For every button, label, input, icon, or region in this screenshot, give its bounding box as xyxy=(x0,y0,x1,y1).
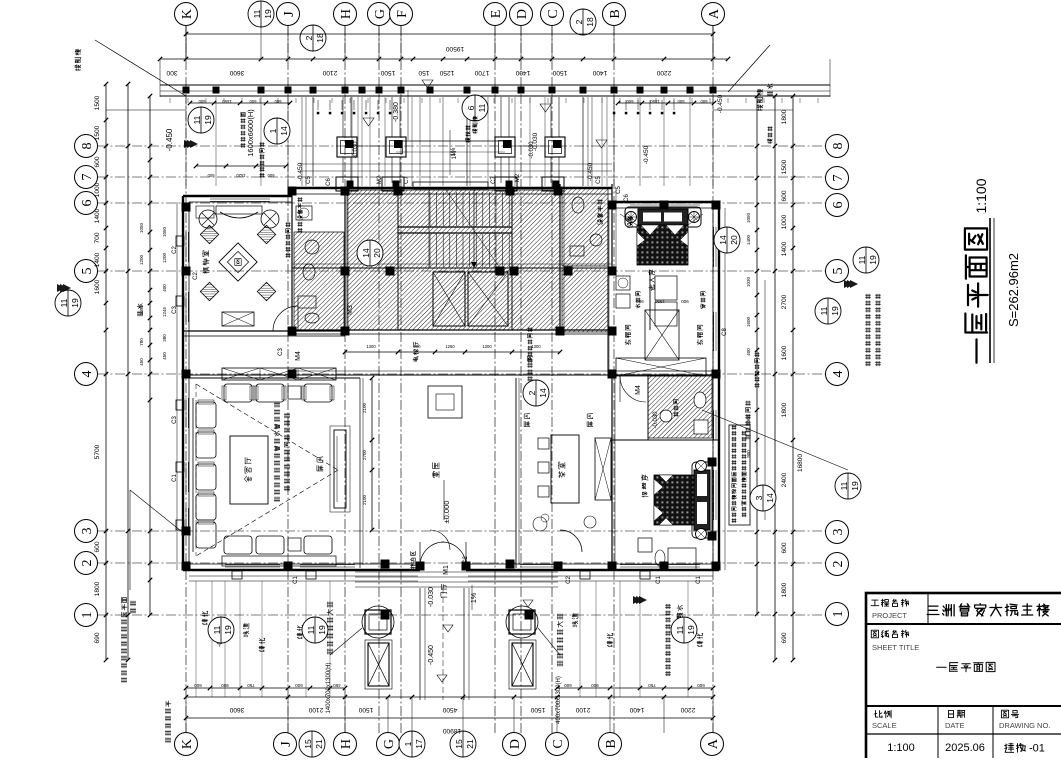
svg-text:1800: 1800 xyxy=(781,109,788,124)
svg-text:11: 11 xyxy=(252,9,262,18)
svg-text:1200: 1200 xyxy=(162,252,167,263)
svg-text:C8: C8 xyxy=(722,328,728,336)
svg-text:600: 600 xyxy=(697,683,705,688)
svg-text:3: 3 xyxy=(754,495,764,500)
svg-text:C: C xyxy=(546,9,561,18)
svg-text:M4: M4 xyxy=(295,351,302,361)
svg-text:19: 19 xyxy=(263,9,273,19)
svg-text:16800: 16800 xyxy=(797,454,804,472)
svg-text:600: 600 xyxy=(781,542,788,553)
svg-text:900: 900 xyxy=(746,450,751,458)
svg-text:1400: 1400 xyxy=(746,234,751,245)
svg-text:C7: C7 xyxy=(491,176,497,184)
svg-text:600: 600 xyxy=(564,683,572,688)
svg-text:B: B xyxy=(604,739,619,748)
svg-text:14: 14 xyxy=(718,235,728,245)
svg-text:J: J xyxy=(279,741,294,747)
svg-text:4500: 4500 xyxy=(442,706,457,713)
svg-text:11: 11 xyxy=(59,298,69,307)
svg-text:M3: M3 xyxy=(347,305,354,315)
svg-text:19: 19 xyxy=(868,255,878,265)
svg-text:7: 7 xyxy=(831,175,846,182)
svg-text:1400: 1400 xyxy=(515,69,530,76)
svg-text:3: 3 xyxy=(80,528,95,535)
svg-text:C5: C5 xyxy=(306,176,312,184)
svg-text:19500: 19500 xyxy=(446,45,465,52)
svg-text:1700: 1700 xyxy=(474,69,489,76)
svg-text:1400: 1400 xyxy=(94,252,101,267)
svg-text:20: 20 xyxy=(729,235,739,245)
svg-text:600: 600 xyxy=(677,99,685,104)
svg-text:-0.450: -0.450 xyxy=(717,94,724,113)
svg-text:1400: 1400 xyxy=(781,241,788,256)
svg-text:C5: C5 xyxy=(596,176,602,184)
svg-text:19: 19 xyxy=(686,625,696,635)
svg-text:C: C xyxy=(551,739,566,748)
svg-text:1500: 1500 xyxy=(380,69,395,76)
svg-text:G: G xyxy=(382,739,397,749)
svg-text:7: 7 xyxy=(80,174,95,181)
svg-text:11: 11 xyxy=(839,481,849,490)
svg-text:400: 400 xyxy=(162,284,167,292)
svg-text:1400x700x1300(H): 1400x700x1300(H) xyxy=(326,662,332,713)
svg-text:C1: C1 xyxy=(172,474,178,482)
svg-text:A: A xyxy=(706,738,721,749)
svg-text:600: 600 xyxy=(194,683,202,688)
svg-text:DATE: DATE xyxy=(945,721,964,730)
svg-text:1500: 1500 xyxy=(358,706,373,713)
svg-text:1600: 1600 xyxy=(746,316,751,327)
svg-text:H: H xyxy=(339,739,354,749)
svg-text:1500: 1500 xyxy=(781,159,788,174)
svg-text:400: 400 xyxy=(746,348,751,356)
svg-text:15: 15 xyxy=(303,739,313,749)
svg-text:2700: 2700 xyxy=(781,294,788,309)
svg-text:2025.06: 2025.06 xyxy=(945,742,985,754)
svg-text:1600: 1600 xyxy=(781,345,788,360)
svg-text:19: 19 xyxy=(203,115,213,125)
svg-text:11: 11 xyxy=(477,103,487,112)
svg-text:900: 900 xyxy=(414,344,422,349)
svg-text:D: D xyxy=(508,739,523,749)
svg-text:J: J xyxy=(282,11,297,17)
svg-text:1: 1 xyxy=(403,741,413,746)
svg-text:1600x6600(H): 1600x6600(H) xyxy=(246,109,255,157)
svg-text:2: 2 xyxy=(304,35,314,40)
svg-text:2100: 2100 xyxy=(362,402,367,413)
svg-text:11: 11 xyxy=(212,625,222,634)
svg-text:600: 600 xyxy=(94,541,101,552)
svg-text:19: 19 xyxy=(850,481,860,491)
svg-text:5700: 5700 xyxy=(94,444,101,459)
svg-text:1500: 1500 xyxy=(94,95,101,110)
svg-text:3: 3 xyxy=(831,529,846,536)
svg-text:750: 750 xyxy=(247,683,255,688)
svg-text:400x700x1300(H): 400x700x1300(H) xyxy=(556,676,562,724)
svg-text:E: E xyxy=(489,10,504,19)
svg-text:6: 6 xyxy=(466,105,476,110)
svg-text:19: 19 xyxy=(70,298,80,308)
svg-text:C6: C6 xyxy=(326,178,332,186)
svg-text:1950: 1950 xyxy=(654,299,665,304)
svg-text:1550: 1550 xyxy=(650,99,660,104)
svg-text:1800: 1800 xyxy=(94,581,101,596)
svg-text:1250: 1250 xyxy=(439,69,454,76)
svg-text:S=262.96m2: S=262.96m2 xyxy=(1006,253,1021,327)
svg-text:6: 6 xyxy=(831,202,846,209)
svg-text:1300: 1300 xyxy=(531,344,541,349)
svg-text:1%: 1% xyxy=(451,147,457,156)
svg-text:1000: 1000 xyxy=(781,214,788,229)
svg-text:1800: 1800 xyxy=(781,582,788,597)
svg-text:300: 300 xyxy=(166,69,177,76)
svg-text:19: 19 xyxy=(223,625,233,635)
svg-text:K: K xyxy=(180,9,195,19)
svg-text:2400: 2400 xyxy=(781,472,788,487)
svg-text:A: A xyxy=(707,8,722,19)
svg-text:11: 11 xyxy=(675,625,685,634)
svg-text:8: 8 xyxy=(80,143,95,150)
svg-text:1: 1 xyxy=(831,611,846,618)
svg-text:-0.450: -0.450 xyxy=(297,162,304,181)
svg-text:14: 14 xyxy=(279,126,289,136)
svg-text:1: 1 xyxy=(268,128,278,133)
svg-text:21: 21 xyxy=(465,739,475,749)
svg-text:1500: 1500 xyxy=(94,125,101,140)
svg-text:1050: 1050 xyxy=(139,222,144,233)
svg-text:6: 6 xyxy=(80,200,95,207)
svg-text:M1: M1 xyxy=(443,565,450,575)
svg-text:600: 600 xyxy=(626,99,634,104)
svg-text:1500: 1500 xyxy=(552,69,567,76)
svg-text:SHEET TITLE: SHEET TITLE xyxy=(872,643,919,652)
svg-text:600: 600 xyxy=(274,99,282,104)
svg-text:600: 600 xyxy=(198,99,206,104)
svg-text:750: 750 xyxy=(648,683,656,688)
svg-text:F: F xyxy=(395,10,410,18)
svg-text:4: 4 xyxy=(831,371,846,378)
svg-text:150: 150 xyxy=(418,69,429,76)
svg-text:2200: 2200 xyxy=(656,69,671,76)
svg-text:2: 2 xyxy=(80,560,95,567)
svg-text:G: G xyxy=(373,9,388,19)
svg-text:C3: C3 xyxy=(278,348,284,356)
svg-text:690: 690 xyxy=(781,632,788,643)
svg-text:D: D xyxy=(515,9,530,19)
svg-text:18: 18 xyxy=(585,17,595,27)
svg-text:11: 11 xyxy=(857,255,867,264)
svg-text:2100: 2100 xyxy=(308,706,323,713)
svg-text:600: 600 xyxy=(781,190,788,201)
svg-text:600: 600 xyxy=(295,683,303,688)
svg-text:600: 600 xyxy=(207,173,215,178)
svg-text:M2: M2 xyxy=(377,175,383,184)
svg-text:1400: 1400 xyxy=(94,208,101,223)
svg-text:M4: M4 xyxy=(635,385,642,395)
svg-text:20: 20 xyxy=(372,248,382,258)
svg-text:11: 11 xyxy=(819,306,829,315)
svg-text:C6: C6 xyxy=(624,194,630,202)
svg-text:700: 700 xyxy=(94,232,101,243)
svg-text:5: 5 xyxy=(831,268,846,275)
svg-text:H: H xyxy=(339,9,354,19)
svg-text:C1: C1 xyxy=(696,576,702,584)
svg-text:-0.450: -0.450 xyxy=(643,145,650,164)
svg-text:1050: 1050 xyxy=(746,212,751,223)
svg-text:600: 600 xyxy=(249,99,257,104)
svg-text:1400: 1400 xyxy=(629,706,644,713)
svg-text:450: 450 xyxy=(162,352,167,360)
svg-text:2100: 2100 xyxy=(362,494,367,505)
svg-text:600: 600 xyxy=(94,156,101,167)
svg-text:17: 17 xyxy=(414,739,424,749)
svg-text:C7: C7 xyxy=(404,176,410,184)
svg-text:±0.000: ±0.000 xyxy=(442,501,451,524)
svg-text:-01: -01 xyxy=(1029,743,1045,755)
svg-text:15: 15 xyxy=(454,739,464,749)
svg-text:2100: 2100 xyxy=(322,69,337,76)
svg-text:1500: 1500 xyxy=(530,706,545,713)
svg-text:450: 450 xyxy=(333,683,341,688)
svg-text:14: 14 xyxy=(538,388,548,398)
svg-text:19: 19 xyxy=(317,625,327,635)
svg-text:DRAWING NO.: DRAWING NO. xyxy=(999,721,1050,730)
svg-text:-0.030: -0.030 xyxy=(428,587,435,607)
svg-text:11: 11 xyxy=(192,115,202,124)
svg-text:M2: M2 xyxy=(515,173,521,182)
svg-text:1520: 1520 xyxy=(236,173,246,178)
svg-text:C3: C3 xyxy=(172,306,178,314)
svg-text:900: 900 xyxy=(636,299,644,304)
svg-text:-0.450: -0.450 xyxy=(428,645,435,665)
svg-text:900: 900 xyxy=(221,683,229,688)
svg-text:1200: 1200 xyxy=(139,254,144,265)
svg-text:-0.030: -0.030 xyxy=(532,132,539,151)
svg-text:SCALE: SCALE xyxy=(872,721,897,730)
svg-text:1550: 1550 xyxy=(222,99,232,104)
svg-text:1000: 1000 xyxy=(94,182,101,197)
svg-text:18: 18 xyxy=(315,33,325,43)
svg-text:-0.450: -0.450 xyxy=(165,128,174,151)
svg-text:1300: 1300 xyxy=(366,344,376,349)
svg-text:21: 21 xyxy=(314,739,324,749)
svg-text:1300: 1300 xyxy=(482,344,492,349)
svg-text:1800: 1800 xyxy=(781,402,788,417)
svg-text:1245: 1245 xyxy=(162,306,167,317)
svg-text:14: 14 xyxy=(361,248,371,258)
svg-text:PROJECT: PROJECT xyxy=(872,611,907,620)
svg-text:1400: 1400 xyxy=(592,69,607,76)
svg-text:780: 780 xyxy=(139,338,144,346)
svg-text:18900: 18900 xyxy=(443,727,462,734)
svg-text:1030: 1030 xyxy=(746,276,751,287)
svg-text:C1: C1 xyxy=(656,576,662,584)
svg-text:450: 450 xyxy=(139,358,144,366)
svg-text:B: B xyxy=(608,9,623,18)
svg-text:14: 14 xyxy=(765,493,775,503)
svg-text:C5: C5 xyxy=(616,186,622,194)
svg-text:3600: 3600 xyxy=(229,706,244,713)
svg-text:19: 19 xyxy=(830,306,840,316)
svg-text:1050: 1050 xyxy=(162,226,167,237)
svg-text:3600: 3600 xyxy=(229,69,244,76)
svg-text:1600: 1600 xyxy=(94,279,101,294)
svg-text:900: 900 xyxy=(681,299,689,304)
svg-text:1: 1 xyxy=(80,612,95,619)
svg-text:2: 2 xyxy=(527,390,537,395)
svg-text:2700: 2700 xyxy=(362,449,367,460)
svg-text:1:100: 1:100 xyxy=(887,742,915,754)
svg-text:2200: 2200 xyxy=(680,706,695,713)
svg-text:8: 8 xyxy=(831,143,846,150)
svg-text:2: 2 xyxy=(574,19,584,24)
svg-text:900: 900 xyxy=(591,683,599,688)
svg-text:-0.030: -0.030 xyxy=(653,411,659,429)
svg-text:C1: C1 xyxy=(293,576,299,584)
svg-text:11: 11 xyxy=(306,625,316,634)
svg-text:2: 2 xyxy=(831,561,846,568)
svg-text:5: 5 xyxy=(80,268,95,275)
svg-text:C2: C2 xyxy=(172,246,178,254)
svg-text:1:100: 1:100 xyxy=(973,178,989,213)
svg-text:K: K xyxy=(180,739,195,749)
svg-text:C2: C2 xyxy=(193,272,199,280)
svg-text:600: 600 xyxy=(267,173,275,178)
svg-text:690: 690 xyxy=(94,632,101,643)
svg-text:C2: C2 xyxy=(463,556,469,564)
svg-text:2100: 2100 xyxy=(575,706,590,713)
svg-text:4: 4 xyxy=(80,371,95,378)
svg-text:-0.380: -0.380 xyxy=(393,102,400,122)
svg-text:1260: 1260 xyxy=(445,344,455,349)
svg-text:C2: C2 xyxy=(566,576,572,584)
svg-text:1000: 1000 xyxy=(746,414,751,425)
svg-text:600: 600 xyxy=(700,99,708,104)
svg-text:C3: C3 xyxy=(172,416,178,424)
svg-text:380: 380 xyxy=(162,334,167,342)
